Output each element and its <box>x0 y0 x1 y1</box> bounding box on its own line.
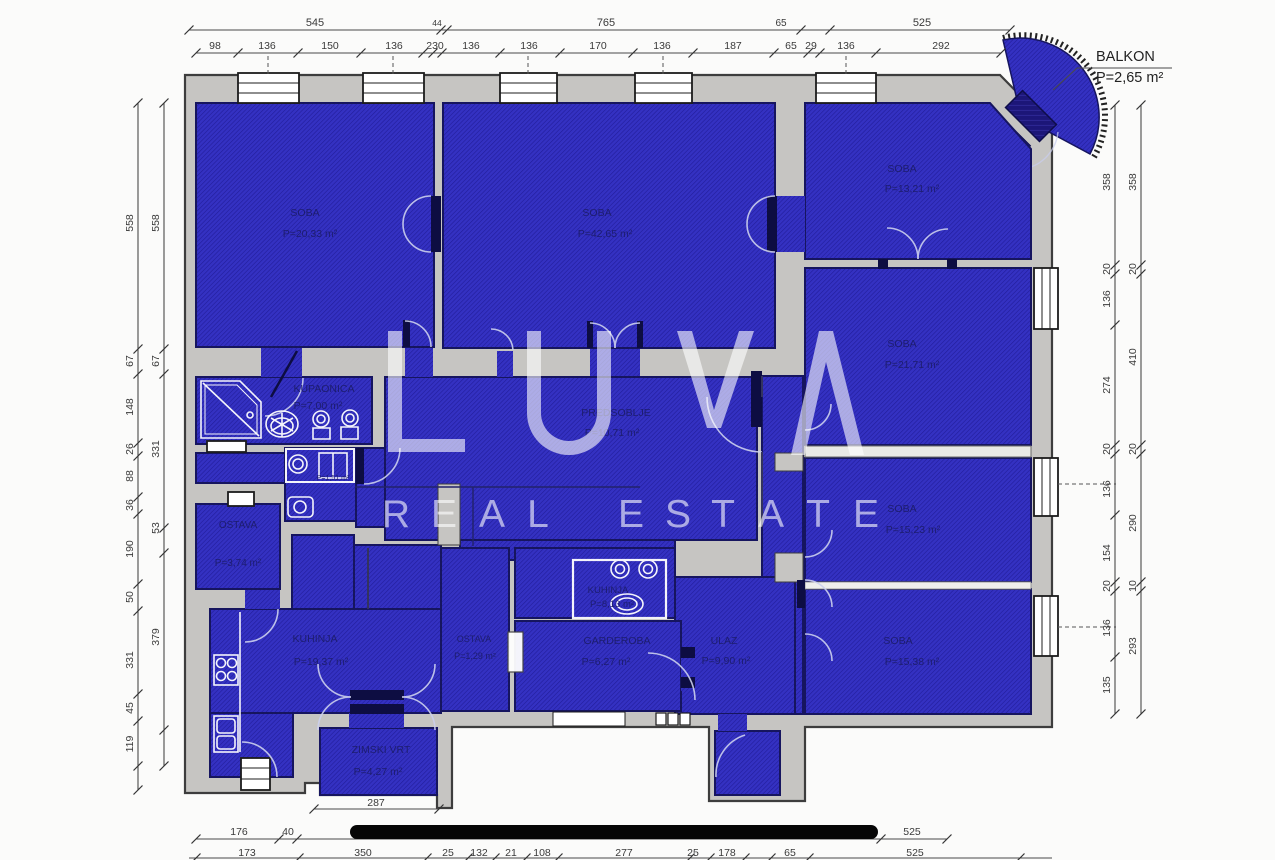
svg-text:SOBA: SOBA <box>887 503 916 515</box>
svg-text:173: 173 <box>238 847 256 859</box>
svg-text:SOBA: SOBA <box>290 207 319 219</box>
svg-text:53: 53 <box>150 522 162 534</box>
svg-text:PREDSOBLJE: PREDSOBLJE <box>581 407 650 419</box>
svg-text:176: 176 <box>230 826 248 838</box>
svg-text:525: 525 <box>906 847 924 859</box>
svg-text:10: 10 <box>1127 580 1139 592</box>
svg-text:E: E <box>853 493 879 536</box>
svg-text:67: 67 <box>124 355 136 367</box>
svg-text:P=4,27 m²: P=4,27 m² <box>354 766 403 778</box>
svg-text:P=13,21 m²: P=13,21 m² <box>885 183 940 195</box>
svg-text:292: 292 <box>932 40 950 52</box>
svg-text:21: 21 <box>505 847 517 859</box>
svg-text:SOBA: SOBA <box>887 338 916 350</box>
svg-text:KUPAONICA: KUPAONICA <box>293 383 354 395</box>
svg-text:190: 190 <box>124 540 136 558</box>
svg-text:331: 331 <box>124 651 136 669</box>
svg-text:25: 25 <box>687 847 699 859</box>
svg-text:331: 331 <box>150 440 162 458</box>
svg-text:274: 274 <box>1101 376 1113 394</box>
svg-text:P=20,33 m²: P=20,33 m² <box>283 228 338 240</box>
svg-text:136: 136 <box>258 40 276 52</box>
svg-text:545: 545 <box>306 17 324 29</box>
svg-text:P=15,23 m²: P=15,23 m² <box>886 524 941 536</box>
svg-text:P=1,51 m²: P=1,51 m² <box>317 475 350 482</box>
svg-text:P=42,65 m²: P=42,65 m² <box>578 228 633 240</box>
svg-text:350: 350 <box>354 847 372 859</box>
svg-text:119: 119 <box>124 735 136 752</box>
svg-text:98: 98 <box>209 40 221 52</box>
svg-text:136: 136 <box>520 40 538 52</box>
svg-text:P=1,29 m²: P=1,29 m² <box>454 651 496 661</box>
svg-text:20: 20 <box>1101 443 1113 455</box>
svg-text:290: 290 <box>1127 514 1139 532</box>
svg-text:558: 558 <box>150 214 162 232</box>
svg-text:379: 379 <box>150 628 162 646</box>
svg-text:108: 108 <box>533 847 551 859</box>
svg-text:E: E <box>618 493 644 536</box>
svg-text:765: 765 <box>597 17 615 29</box>
svg-text:136: 136 <box>1101 290 1113 308</box>
svg-text:358: 358 <box>1127 173 1139 191</box>
svg-text:65: 65 <box>775 18 787 29</box>
svg-text:40: 40 <box>282 826 294 838</box>
svg-text:358: 358 <box>1101 173 1113 191</box>
svg-text:150: 150 <box>321 40 339 52</box>
svg-text:P=7,00 m²: P=7,00 m² <box>294 400 343 412</box>
svg-text:T: T <box>806 493 830 536</box>
svg-text:136: 136 <box>462 40 480 52</box>
svg-text:558: 558 <box>124 214 136 232</box>
svg-text:65: 65 <box>784 847 796 859</box>
svg-text:136: 136 <box>385 40 403 52</box>
svg-text:36: 36 <box>124 499 136 511</box>
svg-text:20: 20 <box>1127 263 1139 275</box>
svg-text:T: T <box>711 493 735 536</box>
svg-text:277: 277 <box>615 847 633 859</box>
svg-text:135: 135 <box>1101 676 1113 694</box>
svg-text:148: 148 <box>124 398 136 416</box>
svg-text:44: 44 <box>432 18 442 28</box>
svg-text:26: 26 <box>124 443 136 455</box>
svg-text:L: L <box>527 493 549 536</box>
svg-text:E: E <box>431 493 457 536</box>
svg-text:P=6,27 m²: P=6,27 m² <box>582 656 631 668</box>
svg-text:154: 154 <box>1101 544 1113 562</box>
svg-text:SOBA: SOBA <box>887 163 916 175</box>
svg-text:45: 45 <box>124 702 136 714</box>
svg-text:293: 293 <box>1127 637 1139 655</box>
svg-text:88: 88 <box>124 470 136 482</box>
svg-text:410: 410 <box>1127 348 1139 366</box>
svg-text:67: 67 <box>150 355 162 367</box>
svg-text:187: 187 <box>724 40 742 52</box>
svg-text:230: 230 <box>426 40 444 52</box>
svg-text:P=8,13 m²: P=8,13 m² <box>590 599 634 610</box>
svg-text:136: 136 <box>1101 480 1113 498</box>
svg-text:20: 20 <box>1101 263 1113 275</box>
svg-text:178: 178 <box>718 847 736 859</box>
svg-text:GARDEROBA: GARDEROBA <box>583 635 650 647</box>
svg-text:50: 50 <box>124 591 136 603</box>
svg-text:P=21,71 m²: P=21,71 m² <box>885 359 940 371</box>
svg-text:136: 136 <box>837 40 855 52</box>
svg-text:29: 29 <box>805 40 817 52</box>
svg-text:20: 20 <box>1101 580 1113 592</box>
svg-text:SOBA: SOBA <box>582 207 611 219</box>
svg-text:A: A <box>479 493 505 536</box>
svg-text:OSTAVA: OSTAVA <box>457 634 492 644</box>
svg-text:BALKON: BALKON <box>1096 49 1155 65</box>
svg-text:S: S <box>665 493 691 536</box>
svg-text:ZIMSKI VRT: ZIMSKI VRT <box>352 744 411 756</box>
svg-text:525: 525 <box>913 17 931 29</box>
svg-text:525: 525 <box>903 826 921 838</box>
svg-text:287: 287 <box>367 797 385 809</box>
svg-text:170: 170 <box>589 40 607 52</box>
svg-text:OSTAVA: OSTAVA <box>219 520 258 531</box>
svg-text:136: 136 <box>653 40 671 52</box>
svg-text:P=9,90 m²: P=9,90 m² <box>702 655 751 667</box>
svg-text:KUHINJA: KUHINJA <box>588 585 629 596</box>
svg-text:A: A <box>758 493 784 536</box>
svg-text:KUHINJA: KUHINJA <box>293 633 338 645</box>
svg-text:65: 65 <box>785 40 797 52</box>
svg-text:132: 132 <box>470 847 488 859</box>
svg-text:R: R <box>382 493 410 536</box>
svg-text:P=2,65 m²: P=2,65 m² <box>1096 70 1163 86</box>
svg-text:20: 20 <box>1127 443 1139 455</box>
svg-text:P=15,38 m²: P=15,38 m² <box>885 656 940 668</box>
svg-text:136: 136 <box>1101 619 1113 637</box>
svg-text:ULAZ: ULAZ <box>711 635 738 647</box>
svg-text:P=19,37 m²: P=19,37 m² <box>294 656 349 668</box>
svg-text:P=3,74 m²: P=3,74 m² <box>215 558 262 569</box>
svg-text:SOBA: SOBA <box>883 635 912 647</box>
svg-text:25: 25 <box>442 847 454 859</box>
